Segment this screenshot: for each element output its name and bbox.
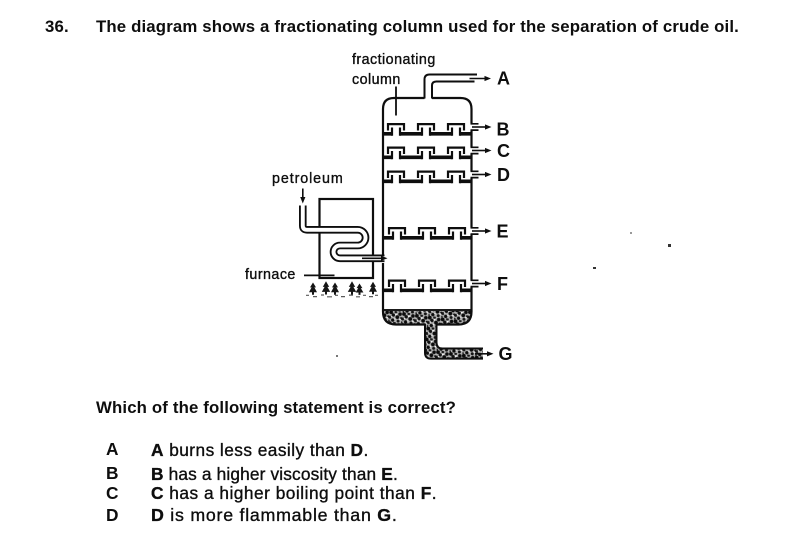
svg-text:E: E	[497, 221, 509, 241]
svg-text:A: A	[497, 69, 510, 89]
svg-text:D: D	[497, 165, 510, 185]
svg-text:F: F	[497, 274, 508, 294]
svg-text:G: G	[499, 344, 513, 364]
svg-text:C: C	[497, 141, 510, 161]
svg-text:B: B	[497, 119, 510, 139]
